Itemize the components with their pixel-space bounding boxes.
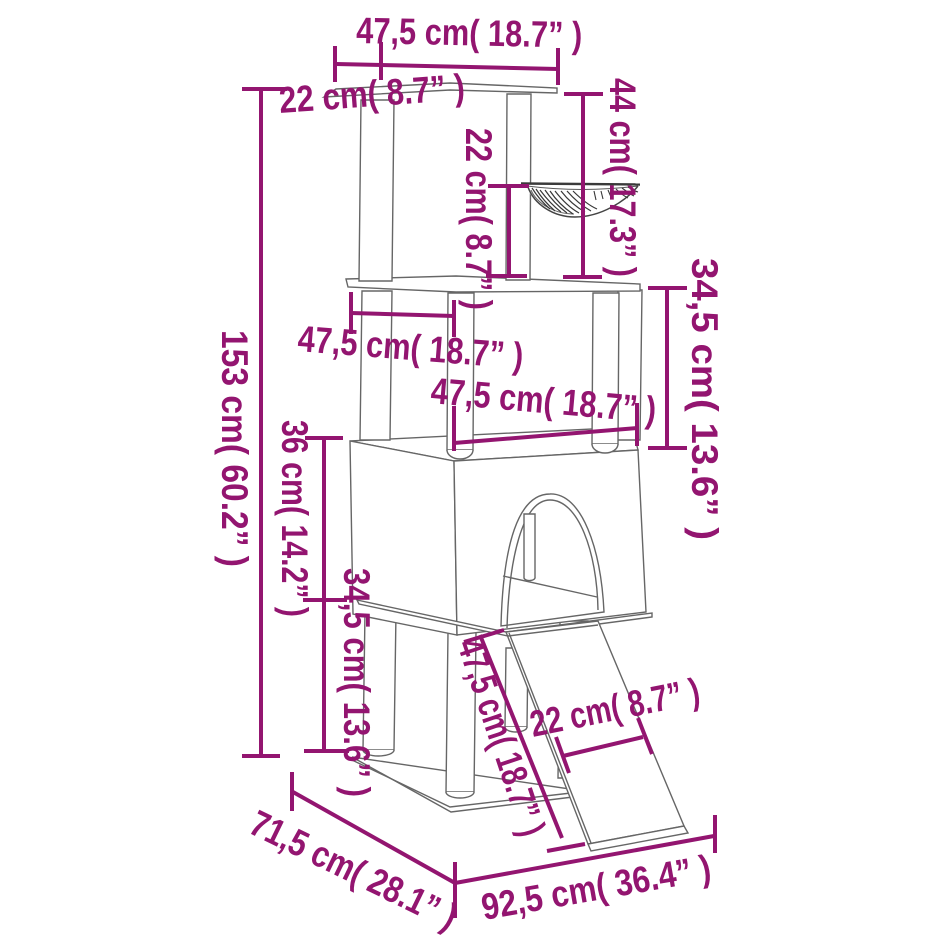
svg-text:47,5 cm( 18.7” ): 47,5 cm( 18.7” ): [296, 318, 525, 377]
svg-text:34,5 cm( 13.6” ): 34,5 cm( 13.6” ): [336, 568, 377, 797]
svg-text:34,5 cm( 13.6” ): 34,5 cm( 13.6” ): [684, 258, 725, 540]
svg-text:153 cm( 60.2” ): 153 cm( 60.2” ): [214, 330, 255, 567]
svg-text:22 cm( 8.7” ): 22 cm( 8.7” ): [458, 128, 499, 310]
svg-text:47,5 cm( 18.7” ): 47,5 cm( 18.7” ): [356, 10, 583, 56]
svg-text:36 cm( 14.2” ): 36 cm( 14.2” ): [274, 420, 315, 617]
svg-text:44 cm( 17.3” ): 44 cm( 17.3” ): [602, 78, 643, 277]
svg-text:22 cm( 8.7” ): 22 cm( 8.7” ): [278, 66, 467, 121]
